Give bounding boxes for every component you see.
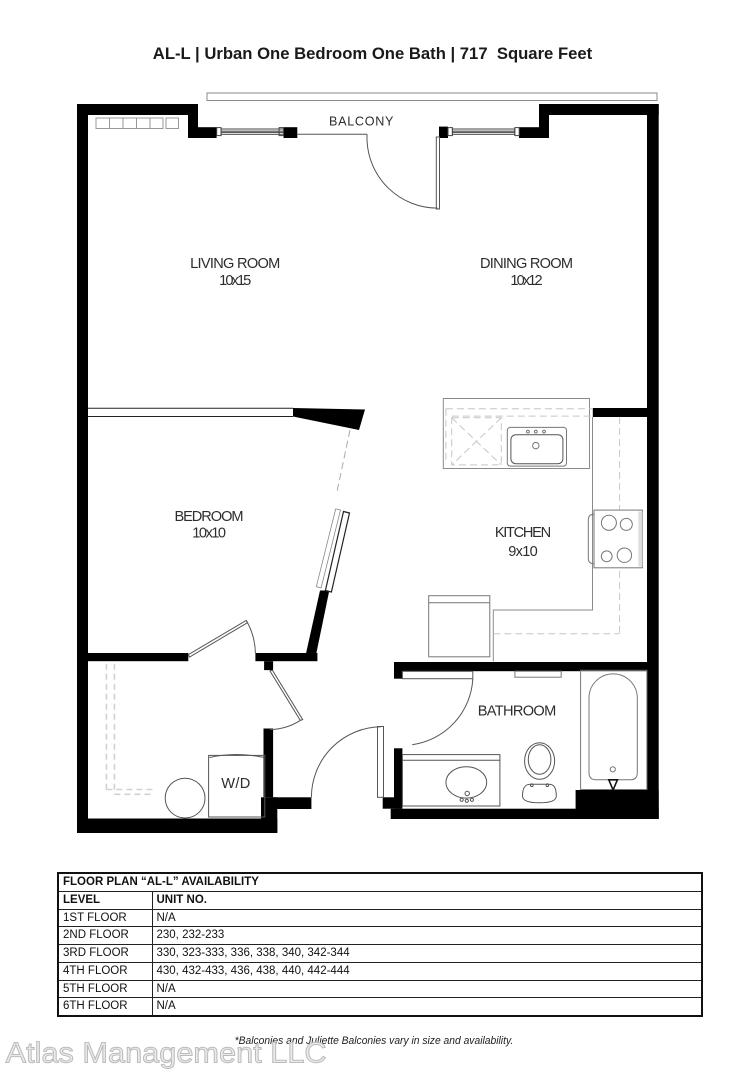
svg-text:10x15: 10x15 <box>219 273 251 289</box>
svg-text:BATHROOM: BATHROOM <box>478 704 557 720</box>
svg-text:BEDROOM: BEDROOM <box>174 509 243 525</box>
svg-text:W/D: W/D <box>221 776 250 792</box>
svg-text:9x10: 9x10 <box>508 544 538 560</box>
svg-text:10x12: 10x12 <box>510 273 542 289</box>
svg-text:AL-L | Urban One Bedroom One B: AL-L | Urban One Bedroom One Bath | 717 … <box>153 44 593 63</box>
svg-text:LIVING ROOM: LIVING ROOM <box>190 256 280 272</box>
svg-text:Atlas Management LLC: Atlas Management LLC <box>6 1038 327 1070</box>
svg-text:DINING ROOM: DINING ROOM <box>480 256 573 272</box>
svg-text:KITCHEN: KITCHEN <box>495 525 551 541</box>
svg-text:BALCONY: BALCONY <box>329 114 394 128</box>
svg-text:10x10: 10x10 <box>192 525 226 541</box>
